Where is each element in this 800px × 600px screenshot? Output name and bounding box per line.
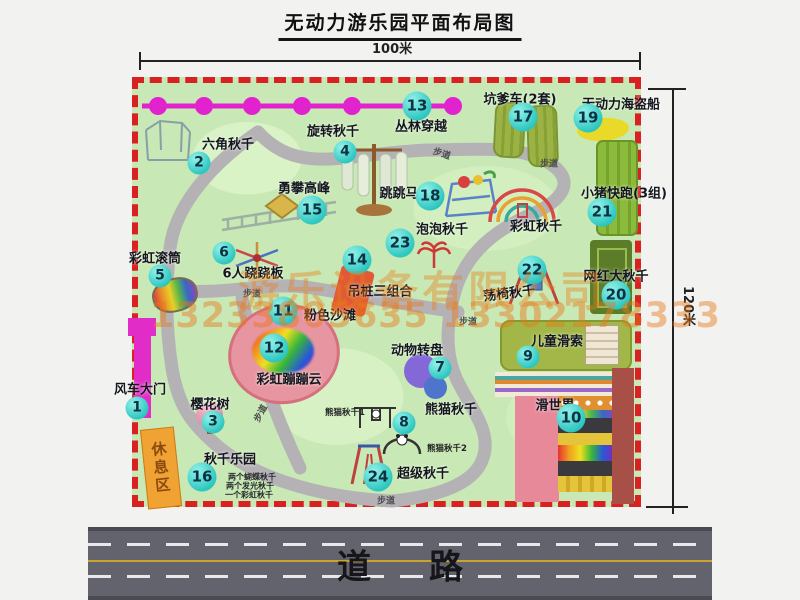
park-layout-poster: 无动力游乐园平面布局图 100米 120米 [0, 0, 800, 600]
label-1: 风车大门 [114, 379, 166, 398]
marker-1: 1 [126, 397, 149, 420]
page-title: 无动力游乐园平面布局图 [278, 8, 521, 41]
label-12: 彩虹蹦蹦云 [256, 369, 321, 388]
marker-20: 20 [602, 281, 631, 310]
dimension-tick-left [139, 52, 141, 70]
dimension-tick-top [648, 88, 686, 90]
marker-7: 7 [429, 357, 452, 380]
label-2: 六角秋千 [202, 134, 254, 153]
label-5: 彩虹滚筒 [129, 248, 181, 267]
slide-world-wall-icon [612, 368, 634, 504]
marker-16: 16 [188, 463, 217, 492]
dimension-line-top [140, 60, 640, 62]
marker-23: 23 [386, 229, 415, 258]
dimension-tick-bottom [646, 506, 688, 508]
marker-10: 10 [557, 404, 586, 433]
label-14: 吊桩三组合 [347, 281, 412, 300]
marker-9: 9 [517, 346, 540, 369]
marker-15: 15 [298, 196, 327, 225]
marker-17: 17 [509, 103, 538, 132]
dimension-width-label: 100米 [372, 38, 412, 57]
marker-22: 22 [518, 256, 547, 285]
label-7: 动物转盘 [391, 340, 443, 359]
marker-13: 13 [403, 92, 432, 121]
dimension-tick-right [639, 52, 641, 70]
marker-3: 3 [202, 411, 225, 434]
label-23: 泡泡秋千 [416, 219, 468, 238]
text-label-11: 一个彩虹秋千 [225, 490, 273, 501]
text-label-0: 彩虹秋千 [510, 216, 562, 235]
label-24: 超级秋千 [397, 463, 449, 482]
marker-21: 21 [588, 198, 617, 227]
label-11: 粉色沙滩 [304, 305, 356, 324]
label-3: 樱花树 [190, 394, 229, 413]
marker-11: 11 [269, 297, 298, 326]
marker-6: 6 [213, 242, 236, 265]
road: 道路 [88, 527, 712, 600]
marker-5: 5 [149, 265, 172, 288]
text-label-8: 熊猫秋千2 [427, 442, 467, 454]
marker-2: 2 [188, 152, 211, 175]
marker-14: 14 [343, 246, 372, 275]
label-16: 秋千乐园 [204, 449, 256, 468]
label-8: 熊猫秋千 [425, 399, 477, 418]
label-6: 6人跷跷板 [222, 263, 283, 282]
marker-8: 8 [393, 412, 416, 435]
text-label-5: 步道 [377, 494, 395, 507]
text-label-7: 熊猫秋千1 [325, 406, 365, 418]
road-label: 道路 [279, 539, 521, 588]
label-15: 勇攀高峰 [278, 178, 330, 197]
zipline-tower-icon [585, 325, 619, 365]
label-4: 旋转秋千 [307, 121, 359, 140]
marker-4: 4 [334, 141, 357, 164]
text-label-4: 步道 [459, 315, 477, 328]
rest-area-label: 休息区 [148, 440, 175, 496]
dimension-line-right [672, 88, 674, 514]
animal-turntable-disc2-icon [424, 376, 447, 399]
text-label-3: 步道 [243, 287, 261, 300]
marker-24: 24 [364, 463, 393, 492]
text-label-2: 步道 [540, 157, 558, 170]
label-18: 跳跳马 [379, 183, 418, 202]
dimension-height-label: 120米 [678, 286, 697, 326]
slide-world-top-stripes-icon [495, 372, 615, 397]
marker-12: 12 [260, 334, 289, 363]
marker-18: 18 [416, 182, 445, 211]
marker-19: 19 [574, 104, 603, 133]
label-9: 儿童滑索 [531, 331, 583, 350]
